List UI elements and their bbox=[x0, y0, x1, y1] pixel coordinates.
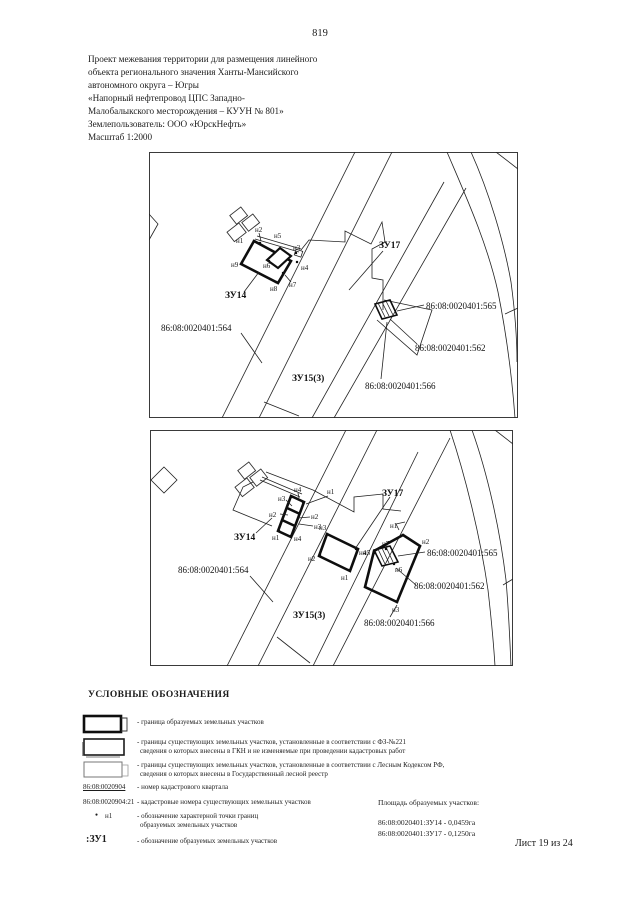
point-label: н1 bbox=[341, 574, 349, 582]
header-line: объекта регионального значения Ханты-Ман… bbox=[88, 66, 388, 79]
hatched-parcel-565 bbox=[375, 300, 397, 319]
parcel-labels: ЗУ14 ЗУ17 ЗУ15(3) 86:08:0020401:564 86:0… bbox=[178, 489, 498, 628]
point-label: н1 bbox=[236, 237, 244, 245]
legend-symbol-existing-boundary bbox=[82, 737, 138, 760]
document-page: 819 Проект межевания территории для разм… bbox=[0, 0, 640, 905]
point-label: н2 bbox=[422, 538, 430, 546]
point-label: н3 bbox=[293, 244, 301, 252]
document-header: Проект межевания территории для размещен… bbox=[88, 53, 388, 144]
parcel-label-zu15: ЗУ15(3) bbox=[293, 610, 325, 621]
point-label: н4 bbox=[294, 535, 302, 543]
cadastral-label-564: 86:08:0020401:564 bbox=[161, 323, 232, 333]
legend-point-code: н1 bbox=[105, 812, 112, 820]
parcel-labels: ЗУ14 ЗУ17 ЗУ15(3) 86:08:0020401:564 86:0… bbox=[161, 241, 497, 391]
legend-existing-desc: - кадастровые номера существующих земель… bbox=[137, 798, 311, 807]
legend-kvartal-code: 86:08:0020904 bbox=[83, 783, 125, 791]
point-label: н1 bbox=[327, 488, 335, 496]
parcel-label-zu14: ЗУ14 bbox=[234, 533, 255, 543]
point-label: н6 bbox=[395, 566, 403, 574]
point-label: н2 bbox=[308, 555, 316, 563]
legend-item-text: - границы существующих земельных участко… bbox=[137, 761, 567, 779]
legend-kvartal-desc: - номер кадастрового квартала bbox=[137, 783, 228, 792]
buildings bbox=[235, 462, 268, 497]
point-label: н3 bbox=[392, 606, 400, 614]
header-line: Малобалыкского месторождения – КУУН № 80… bbox=[88, 105, 388, 118]
point-label: н4 bbox=[294, 486, 302, 494]
point-label: н6 bbox=[263, 262, 271, 270]
cadastral-label-566: 86:08:0020401:566 bbox=[364, 618, 435, 628]
point-label: н2 bbox=[311, 513, 319, 521]
header-line: Масштаб 1:2000 bbox=[88, 131, 388, 144]
legend-item-text: - границы существующих земельных участко… bbox=[137, 738, 557, 756]
sheet-number: Лист 19 из 24 bbox=[515, 838, 573, 849]
map-bottom: н4 н1 н3 н2 н2 н3 н1 н4 н3 н4 н2 н1 н1 н… bbox=[150, 430, 513, 666]
point-label: н7 bbox=[289, 281, 297, 289]
point-label: н2 bbox=[255, 226, 263, 234]
point-label: н4 bbox=[301, 264, 309, 272]
header-line: автономного округа – Югры bbox=[88, 79, 388, 92]
point-label: н5 bbox=[363, 549, 371, 557]
legend-existing-code: 86:08:0020904:21 bbox=[83, 798, 134, 806]
point-label: н3 bbox=[319, 524, 327, 532]
parcel-label-zu15: ЗУ15(3) bbox=[292, 373, 324, 384]
legend-item-text: - граница образуемых земельных участков bbox=[137, 718, 264, 727]
point-labels: н4 н1 н3 н2 н2 н3 н1 н4 н3 н4 н2 н1 н1 н… bbox=[269, 486, 430, 614]
cadastral-label-565: 86:08:0020401:565 bbox=[426, 301, 497, 311]
parcel-label-zu14: ЗУ14 bbox=[225, 291, 246, 301]
point-label: н5 bbox=[274, 232, 282, 240]
header-line: «Напорный нефтепровод ЦПС Западно- bbox=[88, 92, 388, 105]
legend-symbol-formed-boundary bbox=[82, 714, 134, 736]
roads bbox=[222, 152, 518, 418]
cadastral-label-562: 86:08:0020401:562 bbox=[415, 343, 486, 353]
legend-symbol-forest-boundary bbox=[82, 760, 134, 781]
formed-parcel-right bbox=[365, 535, 420, 602]
point-label: н9 bbox=[231, 261, 239, 269]
map-top: н1 н2 н5 н3 н4 н6 н7 н8 н9 ЗУ14 ЗУ17 ЗУ1… bbox=[149, 152, 518, 418]
legend-zu-desc: - обозначение образуемых земельных участ… bbox=[137, 837, 277, 846]
header-line: Землепользователь: ООО «ЮрскНефть» bbox=[88, 118, 388, 131]
cadastral-label-562: 86:08:0020401:562 bbox=[414, 581, 485, 591]
point-label: н7 bbox=[382, 540, 390, 548]
page-number: 819 bbox=[0, 28, 640, 39]
areas-line: 86:08:0020401:ЗУ14 - 0,0459га bbox=[378, 817, 475, 828]
map-frame bbox=[150, 153, 518, 418]
point-symbol: ● bbox=[95, 813, 98, 818]
point-label: н1 bbox=[272, 534, 280, 542]
point-label: н2 bbox=[269, 511, 277, 519]
cadastral-label-565: 86:08:0020401:565 bbox=[427, 548, 498, 558]
point-label: н3 bbox=[278, 495, 286, 503]
formed-parcel-zu17 bbox=[319, 534, 358, 571]
parcel-label-zu17: ЗУ17 bbox=[382, 489, 403, 499]
areas-line: 86:08:0020401:ЗУ17 - 0,1250га bbox=[378, 828, 475, 839]
header-line: Проект межевания территории для размещен… bbox=[88, 53, 388, 66]
cadastral-label-564: 86:08:0020401:564 bbox=[178, 565, 249, 575]
buildings bbox=[227, 207, 260, 242]
legend-point-desc: - обозначение характерной точки границ о… bbox=[137, 812, 357, 830]
point-label: н1 bbox=[390, 522, 398, 530]
parcel-label-zu17: ЗУ17 bbox=[379, 241, 400, 251]
legend-zu-code: :ЗУ1 bbox=[86, 834, 107, 845]
cadastral-label-566: 86:08:0020401:566 bbox=[365, 381, 436, 391]
legend-title: УСЛОВНЫЕ ОБОЗНАЧЕНИЯ bbox=[88, 690, 230, 700]
leader-lines bbox=[241, 233, 424, 379]
point-label: н8 bbox=[270, 285, 278, 293]
areas-title: Площадь образуемых участков: bbox=[378, 798, 479, 807]
